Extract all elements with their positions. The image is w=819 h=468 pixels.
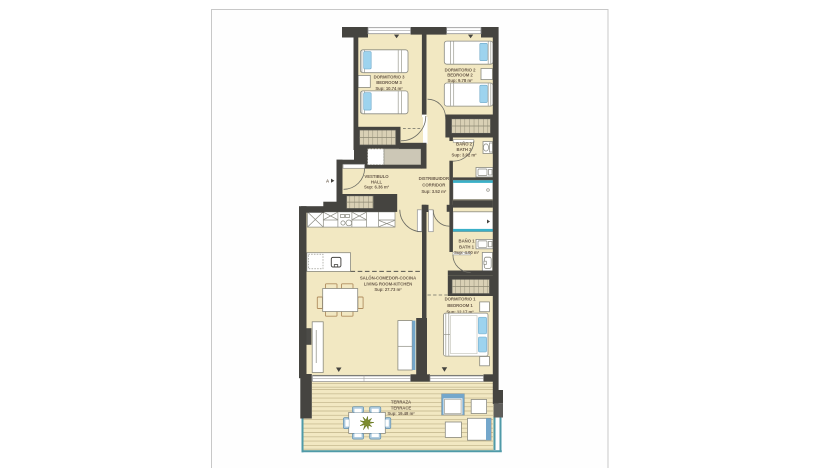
svg-text:Sup: 9.78 m²: Sup: 9.78 m²	[448, 78, 474, 83]
svg-text:TERRACE: TERRACE	[391, 405, 412, 410]
svg-text:DORMITORIO 3: DORMITORIO 3	[374, 75, 405, 80]
svg-text:VESTIBULO: VESTIBULO	[364, 174, 389, 179]
svg-text:Sup: 4.00 m²: Sup: 4.00 m²	[454, 250, 480, 255]
svg-text:SALÓN-COMEDOR-COCINA: SALÓN-COMEDOR-COCINA	[360, 276, 416, 281]
svg-text:HALL: HALL	[371, 179, 383, 184]
svg-text:BEDROOM 3: BEDROOM 3	[376, 80, 402, 85]
svg-text:BEDROOM 1: BEDROOM 1	[447, 303, 473, 308]
svg-text:Sup: 3.92 m²: Sup: 3.92 m²	[452, 152, 478, 157]
svg-text:BATH 1: BATH 1	[459, 244, 475, 249]
svg-text:Sup: 3.52 m²: Sup: 3.52 m²	[421, 189, 447, 194]
svg-text:Sup: 6.36 m²: Sup: 6.36 m²	[364, 185, 390, 190]
svg-text:Sup: 19.48 m²: Sup: 19.48 m²	[387, 411, 415, 416]
svg-text:BATH 2: BATH 2	[457, 147, 473, 152]
svg-text:DORMITORIO 2: DORMITORIO 2	[445, 67, 476, 72]
svg-text:A: A	[326, 179, 329, 184]
svg-text:CORRIDOR: CORRIDOR	[422, 182, 446, 187]
svg-text:TERRAZA: TERRAZA	[391, 400, 411, 405]
svg-text:BAÑO 1: BAÑO 1	[459, 238, 476, 243]
svg-text:BAÑO 2: BAÑO 2	[456, 141, 473, 146]
svg-text:BEDROOM 2: BEDROOM 2	[447, 73, 473, 78]
svg-text:Sup: 27.73 m²: Sup: 27.73 m²	[374, 287, 402, 292]
svg-text:LIVING ROOM-KITCHEN: LIVING ROOM-KITCHEN	[364, 282, 412, 287]
svg-text:Sup: 10.74 m²: Sup: 10.74 m²	[375, 86, 403, 91]
svg-text:DORMITORIO 1: DORMITORIO 1	[445, 297, 476, 302]
svg-text:DISTRIBUIDOR: DISTRIBUIDOR	[419, 176, 450, 181]
